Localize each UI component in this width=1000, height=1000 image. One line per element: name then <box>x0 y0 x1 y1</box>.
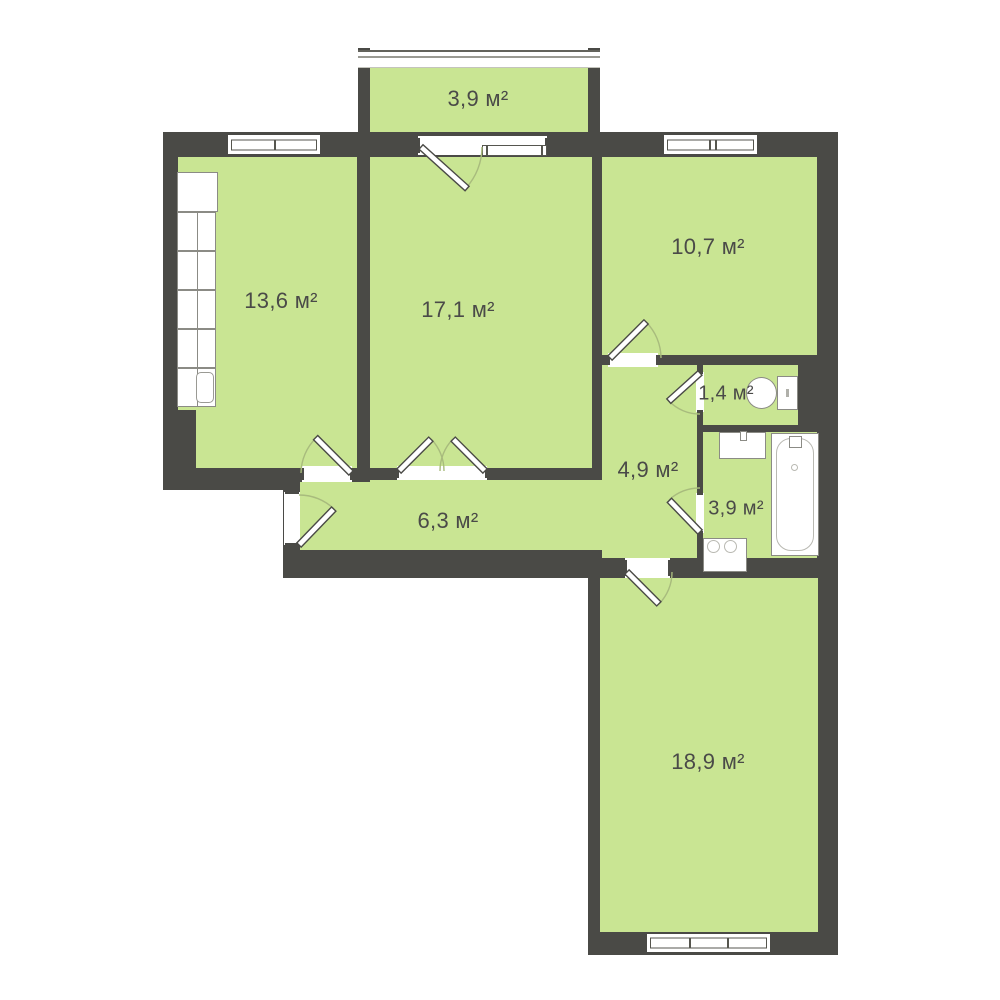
window-tick <box>689 938 691 949</box>
area-label-wc: 1,4 м² <box>698 383 754 406</box>
washing-machine-dial <box>707 540 720 553</box>
window-tick <box>727 938 729 949</box>
window-tick <box>274 139 276 150</box>
area-label-hallway: 4,9 м² <box>618 457 679 483</box>
wall-wc-right-sliver <box>798 355 817 432</box>
opening-kitchen-door <box>302 466 352 482</box>
bathtub-drain <box>791 464 798 471</box>
opening-bathroom-door <box>696 493 704 533</box>
area-label-living: 17,1 м² <box>421 297 494 323</box>
kitchen-window <box>228 135 320 154</box>
wall-bedroom-b-right <box>818 578 838 955</box>
wall-bedroom-b-left <box>588 578 600 955</box>
floor-plan: 3,9 м² 13,6 м² 17,1 м² 10,7 м² 1,4 м² 4,… <box>0 0 1000 1000</box>
area-label-balcony: 3,9 м² <box>448 86 509 112</box>
bedroom-tr-window <box>664 135 757 154</box>
kitchen-sink <box>196 372 214 403</box>
opening-bedroom-tr-door <box>608 353 658 367</box>
bedroom-tr-window-frame <box>667 139 754 150</box>
area-label-bathroom: 3,9 м² <box>708 498 764 521</box>
kitchen-fridge <box>177 172 218 212</box>
window-tick <box>541 145 543 156</box>
washing-machine-dial <box>724 540 737 553</box>
wall-right-outer <box>817 132 838 578</box>
bedroom-b-window-frame <box>650 938 767 949</box>
wall-living-right-divider <box>592 157 602 480</box>
balcony-glazing <box>358 50 600 68</box>
bathtub-faucet <box>789 436 802 448</box>
balcony-door-window-frame <box>482 145 547 156</box>
window-tick <box>486 145 488 156</box>
opening-living-double-door <box>397 466 487 480</box>
area-label-kitchen: 13,6 м² <box>244 288 317 314</box>
window-tick <box>715 139 717 150</box>
area-label-corridor: 6,3 м² <box>418 508 479 534</box>
washbasin-tap <box>740 431 747 441</box>
bedroom-b-window <box>647 934 770 952</box>
wall-left-bottom-band <box>163 482 283 490</box>
wall-wc-bath-divider <box>697 425 820 432</box>
window-tick <box>709 139 711 150</box>
balcony-glazing-line <box>358 56 600 58</box>
bathtub-inner <box>776 438 814 551</box>
opening-bedroom-b-door <box>625 558 670 578</box>
kitchen-window-frame <box>231 139 317 150</box>
opening-entry-door <box>284 492 300 545</box>
area-label-bedroom-bottom: 18,9 м² <box>671 749 744 775</box>
area-label-bedroom-top-right: 10,7 м² <box>671 234 744 260</box>
wall-corridor-bottom <box>283 550 602 578</box>
wall-kitchen-living-divider <box>357 157 370 468</box>
toilet-flush-button <box>786 389 789 397</box>
